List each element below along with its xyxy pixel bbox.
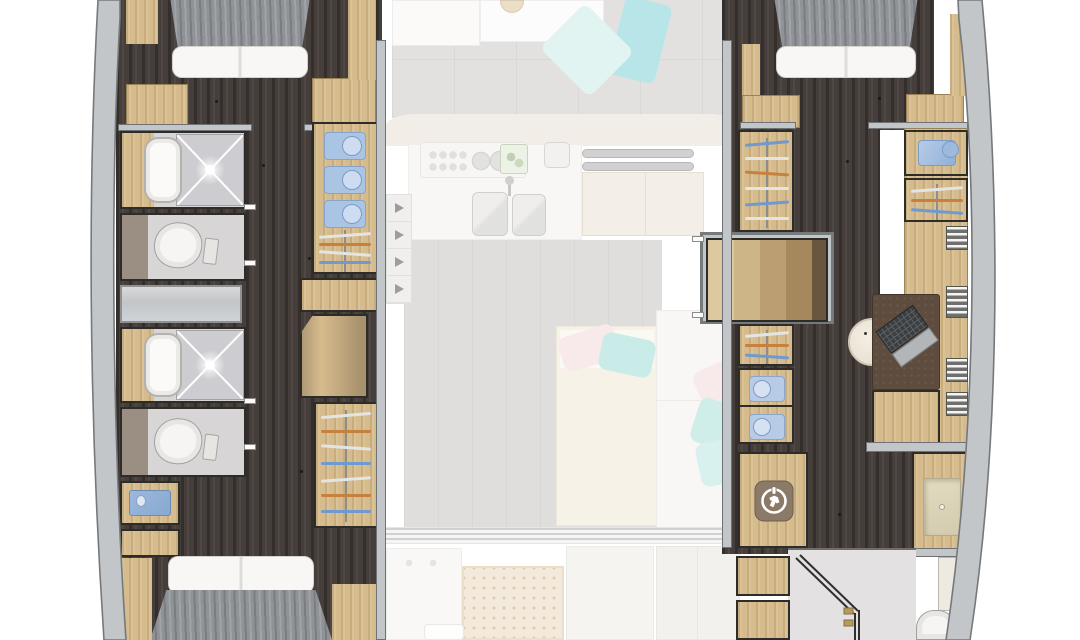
folded-shirt xyxy=(324,132,366,160)
cabin-wall xyxy=(118,124,252,131)
stbd-vanity xyxy=(912,452,975,550)
folded-towel xyxy=(749,376,785,402)
cutting-board xyxy=(500,144,528,174)
vent-shelf xyxy=(946,286,968,318)
hanger xyxy=(745,344,789,347)
cockpit-module xyxy=(566,546,654,640)
door-hinge xyxy=(844,608,853,614)
cockpit-item xyxy=(424,624,464,640)
hatch-pull xyxy=(308,257,311,260)
shower-pan xyxy=(176,330,244,400)
cabin-wall xyxy=(740,122,796,129)
port-landing-step xyxy=(120,285,242,323)
hatch-pull xyxy=(262,164,265,167)
port-aft-bench xyxy=(332,584,378,640)
cockpit-module xyxy=(656,546,740,640)
port-fore-bench xyxy=(126,0,158,44)
vent-shelf xyxy=(946,358,968,382)
stbd-towel-shelves xyxy=(738,368,794,444)
drain-icon xyxy=(939,504,945,510)
stbd-hanger-shelf xyxy=(904,178,968,222)
galley-side-cabinet xyxy=(582,172,704,236)
desk-return-cabinet xyxy=(872,390,940,446)
port-fore-bench xyxy=(312,78,376,128)
stbd-bench-panel xyxy=(938,557,968,611)
handrail xyxy=(582,149,694,158)
port-bathroom-aft xyxy=(120,327,246,403)
folded-shirt xyxy=(324,166,366,194)
galley-double-sink xyxy=(472,190,552,238)
hanger xyxy=(321,510,371,513)
vent-shelf xyxy=(946,226,968,250)
washing-machine-icon xyxy=(754,480,794,522)
storage-box-roll xyxy=(942,141,959,158)
hanger xyxy=(745,157,789,160)
cabin-wall xyxy=(912,548,975,557)
port-stair-landing-box xyxy=(300,314,368,398)
door-hinge xyxy=(692,236,704,242)
vanity-sink xyxy=(144,333,182,397)
door-hinge xyxy=(692,312,704,318)
port-aft-bench xyxy=(120,558,152,640)
hanger xyxy=(319,243,371,246)
door-hinge xyxy=(244,260,256,266)
washer-cabinet xyxy=(738,452,808,548)
port-inner-wall xyxy=(376,40,386,640)
wc-side-panel xyxy=(122,215,148,279)
stair-arrow-icon xyxy=(395,203,404,213)
hanger xyxy=(319,261,371,264)
cockpit-teak-table xyxy=(462,566,564,640)
port-shelf-cabinet xyxy=(120,529,180,557)
prep-sink xyxy=(544,142,570,168)
stbd-inner-wall xyxy=(722,40,732,548)
stbd-hanging-locker xyxy=(738,324,794,366)
vanity-sink xyxy=(144,137,182,203)
sink-basin xyxy=(472,192,508,236)
galley-cabinet-white xyxy=(392,0,480,46)
door-hinge xyxy=(244,204,256,210)
vent-shelf xyxy=(946,392,968,416)
hatch-pull xyxy=(864,332,867,335)
port-aft-bed-duvet xyxy=(150,590,332,640)
stbd-shower-room xyxy=(788,548,916,640)
port-hanging-locker xyxy=(314,402,378,528)
door-hinge xyxy=(844,620,853,626)
handrail xyxy=(582,162,694,171)
port-aft-bed-pillows xyxy=(168,556,314,594)
hanger xyxy=(745,187,789,190)
sink-basin xyxy=(512,194,546,236)
port-fore-bed-pillows xyxy=(172,46,308,78)
hatch-pull xyxy=(300,470,303,473)
toilet xyxy=(151,220,216,275)
stbd-aft-cabinet xyxy=(736,600,790,640)
stair-arrow-icon xyxy=(395,257,404,267)
stbd-stairs xyxy=(700,232,834,324)
stbd-aft-cabinet xyxy=(736,556,790,596)
stair-arrow-icon xyxy=(395,284,404,294)
port-closet-shirts xyxy=(312,122,378,274)
hanger-rail xyxy=(345,410,347,522)
sliding-door-track xyxy=(384,527,740,544)
hatch-pull xyxy=(838,513,841,516)
folded-shirt xyxy=(324,200,366,228)
stbd-fore-bench xyxy=(742,44,760,98)
door-hinge xyxy=(244,444,256,450)
stbd-hanging-locker xyxy=(738,130,794,232)
stbd-fore-bench xyxy=(950,14,968,96)
floorplan-canvas xyxy=(0,0,1080,640)
folded-towel xyxy=(749,414,785,440)
shower-glass xyxy=(788,550,916,640)
port-mid-cabinet xyxy=(300,278,378,312)
port-wc-fwd xyxy=(120,213,246,281)
faucet-icon xyxy=(505,176,514,185)
stbd-fore-bed-pillows xyxy=(776,46,916,78)
port-stairs xyxy=(386,194,412,304)
port-washbasin-cabinet xyxy=(120,481,180,525)
hatch-pull xyxy=(878,97,881,100)
hanger xyxy=(321,494,371,497)
stbd-hull-floor xyxy=(876,450,914,550)
port-fore-bench xyxy=(348,0,376,80)
toilet xyxy=(151,416,216,471)
faucet-icon xyxy=(136,495,146,507)
hanger xyxy=(911,199,963,202)
hatch-pull xyxy=(215,100,218,103)
hatch-pull xyxy=(846,160,849,163)
hanger xyxy=(745,217,789,220)
shower-pan xyxy=(176,134,244,206)
stair-arrow-icon xyxy=(395,230,404,240)
door-hinge xyxy=(244,398,256,404)
stbd-storage-box-shelf xyxy=(904,130,968,176)
wc-side-panel xyxy=(122,409,148,475)
hanger-rail xyxy=(766,138,768,228)
port-bathroom-fwd xyxy=(120,131,246,209)
hanger xyxy=(321,462,371,465)
port-fore-bench xyxy=(126,84,188,128)
hanger xyxy=(321,430,371,433)
port-wc-aft xyxy=(120,407,246,477)
shelf-divider xyxy=(740,405,792,407)
toilet-partial xyxy=(916,610,956,640)
cabin-wall xyxy=(866,442,968,452)
